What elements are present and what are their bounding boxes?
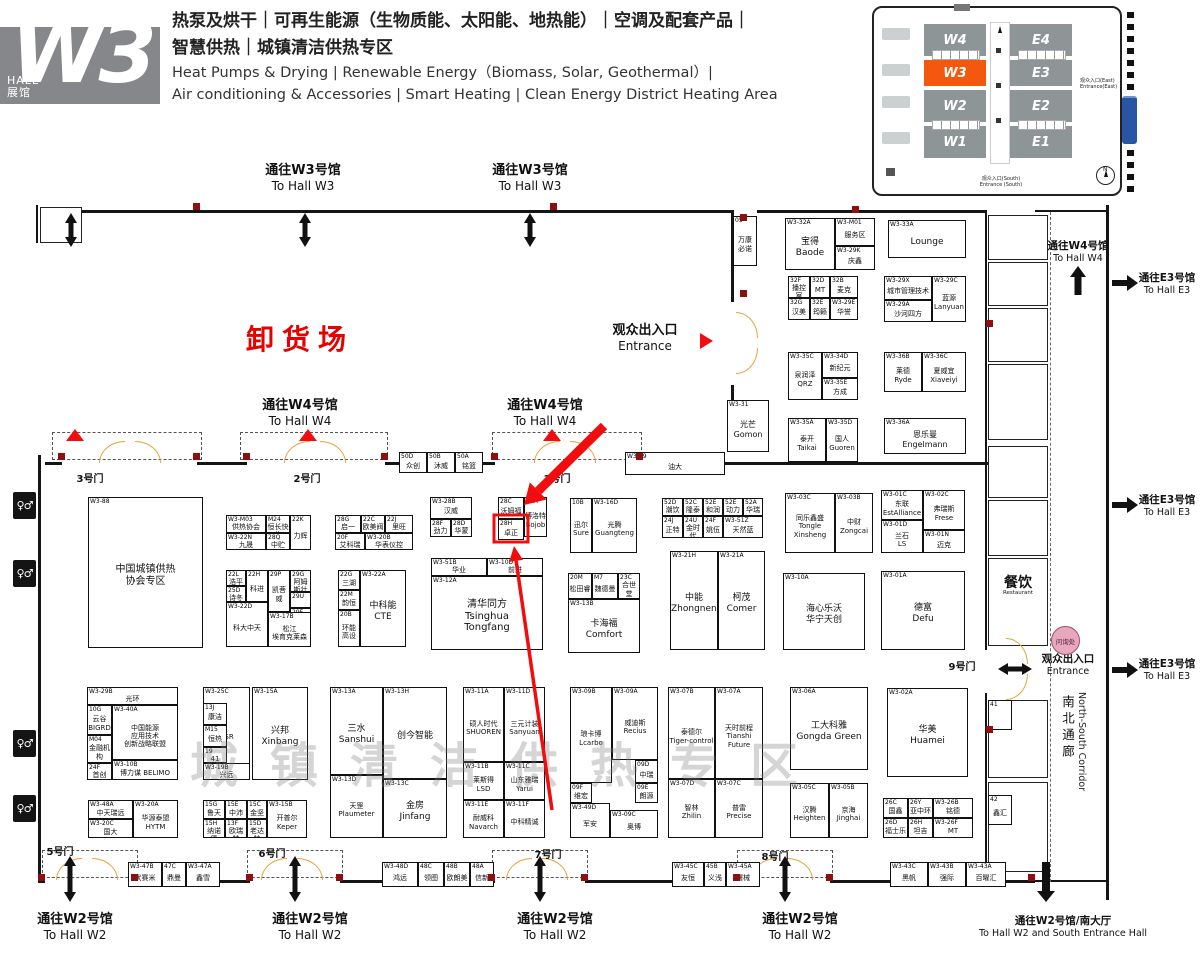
booth-code: 22H bbox=[247, 571, 267, 578]
booth: W3-48A中天瑞远 bbox=[88, 800, 133, 819]
booth-code: W3-12A bbox=[432, 577, 542, 584]
booth: 26C国鑫 bbox=[883, 798, 908, 818]
restroom-icon: ♀♂ bbox=[13, 492, 36, 519]
booth-code: W3-09A bbox=[613, 688, 657, 695]
booth: W3-09A威迪斯Recius bbox=[612, 687, 658, 760]
minimap-north-door-icon bbox=[954, 4, 970, 11]
booth: 32E筠籁 bbox=[810, 298, 830, 320]
fire-hydrant-marker bbox=[550, 203, 557, 210]
booth: W3-11F中科精诚 bbox=[504, 800, 545, 838]
booth-name: EstAlliance bbox=[882, 509, 922, 517]
booth: 26H坦吉 bbox=[908, 818, 933, 838]
booth: W3-88中国城镇供热协会专区 bbox=[88, 497, 203, 648]
booth: W3-05B京海Jinghai bbox=[829, 783, 868, 838]
booth-code: W3-13D bbox=[331, 776, 382, 783]
booth-name: 金时代 bbox=[684, 524, 702, 538]
booth-code: W3-M01 bbox=[836, 219, 874, 226]
double-arrow-icon bbox=[524, 237, 536, 247]
booth-name: 国人 bbox=[827, 435, 857, 443]
booth-name: 鼎曼 bbox=[163, 874, 185, 882]
door-swing-icon bbox=[736, 308, 758, 378]
booth-code: 22L bbox=[227, 571, 245, 578]
booth: W3-36B莱德Ryde bbox=[884, 352, 922, 392]
booth-code: 28A bbox=[525, 498, 546, 505]
minimap-entrance-east-label: 观众入口(East)Entrance(East) bbox=[1080, 78, 1117, 90]
direction-label: 通往W3号馆To Hall W3 bbox=[265, 163, 340, 194]
booth: W3-20C国大 bbox=[88, 819, 133, 838]
booth: 23C合世堂 bbox=[618, 573, 640, 599]
booth-code: W3-05C bbox=[791, 784, 828, 791]
direction-label: 通往W2号馆To Hall W2 bbox=[37, 912, 112, 943]
floorplan-canvas: HALL 展馆 W3 热泵及烘干｜可再生能源（生物质能、太阳能、地热能）｜空调及… bbox=[0, 0, 1200, 955]
direction-label: 通往W2号馆To Hall W2 bbox=[762, 912, 837, 943]
booth-name: 汉腾 bbox=[791, 806, 828, 814]
minimap-hall-e3: E3 bbox=[1010, 60, 1072, 86]
minimap-crosswalk-icon bbox=[1127, 12, 1134, 92]
booth: 32DMT bbox=[810, 276, 830, 298]
booth-name: 东联 bbox=[882, 500, 922, 508]
booth: 28G启一 bbox=[335, 515, 361, 533]
booth-name: 隆泰 bbox=[684, 506, 702, 514]
booth-code: 47C bbox=[163, 863, 185, 870]
booth-code: W3-11A bbox=[464, 688, 503, 695]
booth: W3-49D军安 bbox=[570, 803, 610, 838]
double-arrow-icon bbox=[299, 213, 311, 223]
booth-name: Baode bbox=[786, 248, 834, 259]
booth: W3-29X城市管理技术 bbox=[884, 276, 932, 300]
booth: 47C鼎曼 bbox=[162, 862, 186, 887]
fire-hydrant-marker bbox=[986, 726, 993, 733]
booth-code: W3-09C bbox=[611, 811, 657, 818]
booth-name: CTE bbox=[361, 612, 405, 623]
booth-code: M04 bbox=[88, 736, 111, 743]
booth-name: 九晟 bbox=[227, 541, 265, 549]
booth-code: 32B bbox=[831, 277, 857, 284]
room-outline bbox=[988, 215, 1048, 260]
booth-code: W3-31 bbox=[728, 401, 768, 408]
booth: W3-13D天罡Plaumeter bbox=[330, 775, 383, 838]
booth-code: W3-16D bbox=[593, 499, 636, 506]
booth-code: M24 bbox=[267, 516, 289, 523]
booth-code: 29G bbox=[291, 571, 310, 578]
booth-name: 华美 bbox=[888, 725, 967, 736]
booth-code: W3-36A bbox=[885, 419, 965, 426]
booth-code: W3-13B bbox=[569, 600, 639, 607]
booth: W3-26FMT bbox=[933, 818, 973, 838]
booth-name: 汉威 bbox=[431, 507, 471, 515]
booth: 24J正特 bbox=[662, 516, 683, 538]
booth: W3-10D前进 bbox=[487, 558, 543, 576]
booth-code: W3-33A bbox=[889, 221, 965, 228]
booth: W3-51Z天然蓝 bbox=[723, 516, 763, 538]
booth: W3-33ALounge bbox=[888, 220, 966, 258]
gate-label: 8号门 bbox=[762, 848, 789, 863]
booth-code: W3-47A bbox=[187, 863, 219, 870]
booth: M15恒热 bbox=[203, 725, 227, 747]
booth: W3-01N迈克 bbox=[923, 530, 965, 553]
booth: W3-09C奥博 bbox=[610, 810, 658, 838]
booth-code: M7 bbox=[593, 574, 617, 581]
booth-name: 坦吉 bbox=[909, 827, 932, 835]
booth-code: 15G bbox=[204, 801, 224, 808]
booth-name: 凯菩威 bbox=[269, 586, 289, 603]
booth: W3-29C蓝源Lanyuan bbox=[932, 276, 966, 322]
minimap-crosswalk-icon bbox=[1127, 150, 1134, 192]
booth-code: W3-88 bbox=[89, 498, 202, 505]
booth-name: Keper bbox=[268, 823, 306, 831]
booth-code: W3-15A bbox=[253, 688, 307, 695]
booth-name: Ryde bbox=[885, 376, 921, 384]
booth: W3-03C同乐鑫盛TongleXinsheng bbox=[785, 493, 835, 553]
booth: M7魏德曼 bbox=[592, 573, 618, 599]
fire-hydrant-marker bbox=[131, 874, 138, 881]
booth-code: 26D bbox=[884, 819, 907, 826]
booth-name: 亚中环 bbox=[909, 807, 932, 815]
booth: W3-11D三元计装Sanyuan bbox=[504, 687, 545, 762]
room-outline bbox=[988, 262, 1048, 306]
wall-segment bbox=[985, 693, 987, 883]
booth-name: 同乐鑫盛 bbox=[786, 514, 834, 522]
booth-name: Xinbang bbox=[253, 737, 307, 748]
minimap-parking-strip bbox=[882, 28, 910, 40]
booth-code: 15D bbox=[248, 820, 266, 827]
booth-code: 20B bbox=[339, 611, 359, 618]
booth-code: 25D bbox=[227, 587, 245, 594]
booth-name: 华誉 bbox=[831, 308, 857, 316]
booth-name: 华瑞 bbox=[744, 506, 762, 514]
booth: W3-13B卡海福Comfort bbox=[568, 599, 640, 653]
booth: W3-11C山东雅瑞Yarui bbox=[504, 762, 545, 800]
booth-code: 20F bbox=[336, 534, 364, 541]
wall-segment bbox=[45, 462, 62, 465]
booth-name: Xinsheng bbox=[786, 531, 834, 539]
booth-code: W3-11C bbox=[505, 763, 544, 770]
booth: W3-10A海心乐沃华宁天创 bbox=[783, 573, 865, 650]
corridor-label: 南北通廊 bbox=[1058, 695, 1077, 761]
booth-code: W3-51B bbox=[432, 559, 486, 566]
booth-code: W3-06A bbox=[791, 688, 867, 695]
minimap-dock-hatch bbox=[1018, 120, 1066, 130]
booth-name: 铭篮 bbox=[456, 462, 482, 470]
booth-name: 领图 bbox=[419, 874, 443, 882]
booth: W3-20A华源泰盟HYTM bbox=[133, 800, 178, 838]
booth-name: 油大 bbox=[626, 463, 724, 471]
wall-segment bbox=[1106, 205, 1109, 900]
booth-name: 艾科瑞 bbox=[336, 541, 364, 549]
booth-name: 前进 bbox=[488, 566, 542, 574]
booth-name: 曙械 bbox=[727, 874, 759, 882]
booth-code: 28H bbox=[499, 520, 523, 527]
booth-name: Comfort bbox=[569, 630, 639, 641]
booth-name: Engelmann bbox=[885, 440, 965, 449]
booth: W3-02C弗瑞斯Frese bbox=[923, 490, 965, 530]
booth-code: 26Y bbox=[909, 799, 932, 806]
booth-name: 夏威宜 bbox=[923, 367, 965, 375]
booth-code: W3-36B bbox=[885, 353, 921, 360]
direction-label: 通往W4号馆To Hall W4 bbox=[1048, 240, 1109, 265]
booth-name: 松江 bbox=[269, 625, 310, 633]
fire-hydrant-marker bbox=[243, 453, 250, 460]
booth-code: 41 bbox=[989, 701, 1011, 708]
booth-name: Bojob bbox=[525, 521, 546, 529]
booth-code: 52D bbox=[663, 499, 682, 506]
wall-segment bbox=[38, 455, 41, 883]
booth-code: 42 bbox=[989, 796, 1011, 803]
booth-name: Sanyuan bbox=[505, 728, 544, 736]
booth-name: 莱德 bbox=[885, 367, 921, 375]
booth-name: Tongfang bbox=[432, 622, 542, 634]
booth-code: W3-43C bbox=[891, 863, 927, 870]
booth-name: Guoren bbox=[827, 444, 857, 452]
booth-code: 32D bbox=[811, 277, 829, 284]
booth-name: 新纪元 bbox=[823, 364, 857, 372]
corridor-dashed-line bbox=[1050, 212, 1051, 882]
booth-name: 义浅 bbox=[705, 874, 725, 882]
booth-code: W3-36C bbox=[923, 353, 965, 360]
booth-code: 50B bbox=[428, 453, 454, 460]
booth-name: 启一 bbox=[336, 523, 360, 531]
booth-code: 52C bbox=[684, 499, 702, 506]
booth-name: HYTM bbox=[134, 823, 177, 831]
booth-code: W3-11F bbox=[505, 801, 544, 808]
fire-hydrant-marker bbox=[491, 453, 498, 460]
booth-name: 城市管理技术 bbox=[885, 287, 931, 295]
booth: W3-10B博力谋 BELIMO bbox=[112, 760, 178, 780]
double-arrow-icon bbox=[289, 892, 301, 902]
booth-code: W3-07D bbox=[669, 780, 714, 787]
wall-segment bbox=[757, 210, 987, 213]
booth: W3-07A天时前程Tianshi Future bbox=[715, 687, 763, 779]
minimap-parking-strip bbox=[882, 64, 910, 76]
booth-code: W3-25C bbox=[204, 688, 249, 695]
booth-code: 32G bbox=[789, 299, 809, 306]
booth: 45B义浅 bbox=[704, 862, 726, 887]
gate-label: 5号门 bbox=[47, 843, 74, 858]
booth-name: Jinghai bbox=[830, 814, 867, 822]
booth-code: W3-45A bbox=[727, 863, 759, 870]
minimap-dock-hatch bbox=[1018, 50, 1066, 60]
booth-name: 魏德曼 bbox=[593, 585, 617, 593]
booth: W3-29A沙河四方 bbox=[884, 300, 932, 322]
booth-name: 老达特 bbox=[248, 827, 266, 838]
booth: W3-29B光环 bbox=[87, 687, 178, 705]
wall-segment bbox=[985, 210, 987, 650]
booth: 29G阿姆斯壮 bbox=[290, 570, 311, 592]
booth-code: W3-01C bbox=[882, 491, 922, 498]
booth: W3-03B中财Zongcai bbox=[835, 493, 873, 553]
booth-code: 50A bbox=[456, 453, 482, 460]
booth: W3-22N九晟 bbox=[226, 533, 266, 550]
booth-name: 威迪斯 bbox=[613, 719, 657, 727]
booth-name: Comer bbox=[719, 604, 764, 615]
booth-code: W3-07B bbox=[669, 688, 714, 695]
booth-code: W3-28B bbox=[431, 498, 471, 505]
booth-code: 50D bbox=[400, 453, 426, 460]
booth-name: LSD bbox=[464, 785, 503, 793]
booth-name: 中财 bbox=[836, 518, 872, 526]
booth-name: 卡海福 bbox=[569, 619, 639, 630]
booth: 52C隆泰 bbox=[683, 498, 703, 516]
booth-code: 20M bbox=[569, 574, 591, 581]
booth: 22C欧美阀 bbox=[361, 515, 385, 533]
booth-code: 15C bbox=[248, 801, 266, 808]
minimap-corridor-mark bbox=[996, 83, 1001, 88]
booth-name: 迅尔 bbox=[571, 521, 591, 529]
booth-name: 柯茂 bbox=[719, 593, 764, 604]
booth-code: W3-10D bbox=[488, 559, 542, 566]
booth: 29P凯菩威 bbox=[268, 570, 290, 612]
booth: W3-35D国人Guoren bbox=[826, 418, 858, 462]
booth-name: Yarui bbox=[505, 785, 544, 793]
booth-name: 纳诺德 bbox=[204, 827, 224, 838]
booth-name: 智林 bbox=[669, 804, 714, 812]
booth: 13J康洁 bbox=[203, 703, 227, 725]
booth-name: 动力 bbox=[724, 506, 742, 514]
booth-name: Sure bbox=[571, 529, 591, 537]
booth-code: W3-10B bbox=[113, 761, 177, 768]
fire-hydrant-marker bbox=[986, 320, 993, 327]
direction-label: 通往W2号馆To Hall W2 bbox=[517, 912, 592, 943]
up-arrow-icon bbox=[1070, 266, 1086, 277]
double-arrow-icon bbox=[299, 237, 311, 247]
booth: 22G三湖 bbox=[338, 570, 360, 590]
room-outline bbox=[988, 308, 1048, 362]
booth: W3-45C友恒 bbox=[672, 862, 704, 887]
booth-code: W3-17B bbox=[269, 613, 310, 620]
booth: 52E动力 bbox=[723, 498, 743, 516]
booth: W3-13C金房Jinfang bbox=[383, 779, 447, 838]
booth: W3-07D智林Zhilin bbox=[668, 779, 715, 838]
booth-code: W3-47B bbox=[129, 863, 161, 870]
booth: W3-36A恩乐曼Engelmann bbox=[884, 418, 966, 454]
booth: W3-13A三水Sanshui bbox=[330, 687, 383, 775]
booth-code: W3-29E bbox=[831, 299, 857, 306]
booth-name: 山东雅瑞 bbox=[505, 776, 544, 784]
booth: W3-01C东联EstAlliance bbox=[881, 490, 923, 520]
booth-code: 32F bbox=[789, 277, 809, 284]
booth: W3-12A清华同方TsinghuaTongfang bbox=[431, 576, 543, 650]
minimap-hall-w1: W1 bbox=[924, 126, 986, 158]
booth-name: Gongda Green bbox=[791, 732, 867, 743]
fire-hydrant-marker bbox=[336, 874, 343, 881]
hall-logo: HALL 展馆 W3 bbox=[0, 27, 160, 104]
booth-name: 卓正 bbox=[499, 529, 523, 537]
booth-code: W3-11B bbox=[464, 763, 503, 770]
booth: 48B欧朗美 bbox=[444, 862, 470, 887]
booth-name: 科进 bbox=[247, 585, 267, 593]
booth: 26Y亚中环 bbox=[908, 798, 933, 818]
door-swing-icon bbox=[280, 441, 350, 463]
booth-name: 友恒 bbox=[673, 874, 703, 882]
booth-name: 恒长快热 bbox=[267, 523, 289, 533]
header-line-en1: Heat Pumps & Drying | Renewable Energy（B… bbox=[172, 62, 778, 84]
booth: 15C金坚 bbox=[247, 800, 267, 819]
booth: 10G云谷BIGRD bbox=[87, 705, 112, 735]
booth-name: 兴远 Xingyuan bbox=[204, 771, 249, 780]
booth-name: 开普尔 bbox=[268, 814, 306, 822]
minimap-compass: N bbox=[1096, 166, 1115, 185]
booth-name: Taikai bbox=[789, 444, 825, 452]
booth: 1941 bbox=[203, 747, 227, 763]
minimap-dock-hatch bbox=[932, 120, 980, 130]
booth-name: BIGRD bbox=[88, 724, 111, 732]
booth-name: 和润 bbox=[704, 506, 722, 514]
fire-hydrant-marker bbox=[636, 453, 643, 460]
booth-code: 22K bbox=[291, 516, 310, 523]
booth-code: 24F bbox=[88, 764, 111, 771]
booth-code: W3-20C bbox=[89, 820, 132, 827]
right-arrow-icon bbox=[1127, 662, 1138, 678]
booth-name: Recius bbox=[613, 727, 657, 735]
room-outline bbox=[40, 207, 82, 243]
gate-label: 1号门 bbox=[544, 470, 571, 485]
booth: W3-15A兴邦Xinbang bbox=[252, 687, 308, 780]
right-arrow-icon bbox=[1127, 275, 1138, 291]
booth-name: 金融机构 bbox=[88, 744, 111, 761]
booth-name: 中科精诚 bbox=[505, 818, 544, 826]
booth-name: 潮饮 bbox=[663, 506, 682, 514]
gate-label: 6号门 bbox=[259, 845, 286, 860]
booth-code: W3-35C bbox=[789, 353, 821, 360]
booth-name: 天然蓝 bbox=[724, 526, 762, 534]
booth: 29U bbox=[290, 592, 311, 608]
booth: W3-45A曙械 bbox=[726, 862, 760, 887]
booth-name: 兰石 bbox=[882, 532, 922, 540]
booth-name: 首创 bbox=[88, 771, 111, 779]
booth: 15D老达特 bbox=[247, 819, 267, 838]
booth-name: 铭德 bbox=[934, 807, 972, 815]
fire-hydrant-marker bbox=[852, 206, 859, 213]
booth: 28A博洛特Bojob bbox=[524, 497, 547, 537]
booth-name: 莱斯得 bbox=[464, 776, 503, 784]
booth-name: 力辉 bbox=[291, 532, 310, 540]
booth-name: 埃育克莱森 bbox=[269, 633, 310, 641]
fire-hydrant-marker bbox=[58, 453, 65, 460]
down-arrow-icon bbox=[1037, 891, 1055, 902]
booth: 32B麦克 bbox=[830, 276, 858, 298]
booth-name: 鸿远 bbox=[383, 874, 417, 882]
booth: 10B迅尔Sure bbox=[570, 498, 592, 553]
booth: 09F维宏 bbox=[570, 783, 592, 803]
booth: W3-01A德富Defu bbox=[881, 571, 965, 650]
booth-name: 兴邦 bbox=[253, 726, 307, 737]
minimap-entrance-south-label: 观众入口(South)Entrance (South) bbox=[966, 176, 1036, 188]
booth: W3-40A中国能源应用技术创新战略联盟 bbox=[112, 705, 178, 760]
booth-code: 52E bbox=[704, 499, 722, 506]
booth-name: 鑫汇 bbox=[989, 809, 1011, 817]
booth-name: 协会专区 bbox=[89, 576, 202, 588]
booth-name: 里旺 bbox=[386, 523, 412, 531]
booth-name: 中贮 bbox=[267, 541, 289, 549]
booth-name: 华业 bbox=[432, 566, 486, 574]
wall-segment bbox=[197, 462, 247, 465]
booth-name: MT bbox=[811, 286, 829, 294]
booth: 52A华瑞 bbox=[743, 498, 763, 516]
booth: W3-16D光腾Guangteng bbox=[592, 498, 637, 553]
booth-name: 奥博 bbox=[611, 823, 657, 831]
gate-label: 9号门 bbox=[949, 658, 976, 673]
gate-label: 2号门 bbox=[294, 470, 321, 485]
booth-code: W3-02C bbox=[924, 491, 964, 498]
room-outline bbox=[988, 364, 1048, 440]
booth-code: W3-35E bbox=[823, 379, 857, 386]
booth-code: 28G bbox=[336, 516, 360, 523]
booth: 22H科进 bbox=[246, 570, 268, 602]
booth-code: 52E bbox=[724, 499, 742, 506]
booth-name: 清华同方 bbox=[432, 599, 542, 611]
booth: W3-09B琅卡博Lcarbo bbox=[570, 687, 612, 783]
booth: 15G鲁天 bbox=[203, 800, 225, 819]
